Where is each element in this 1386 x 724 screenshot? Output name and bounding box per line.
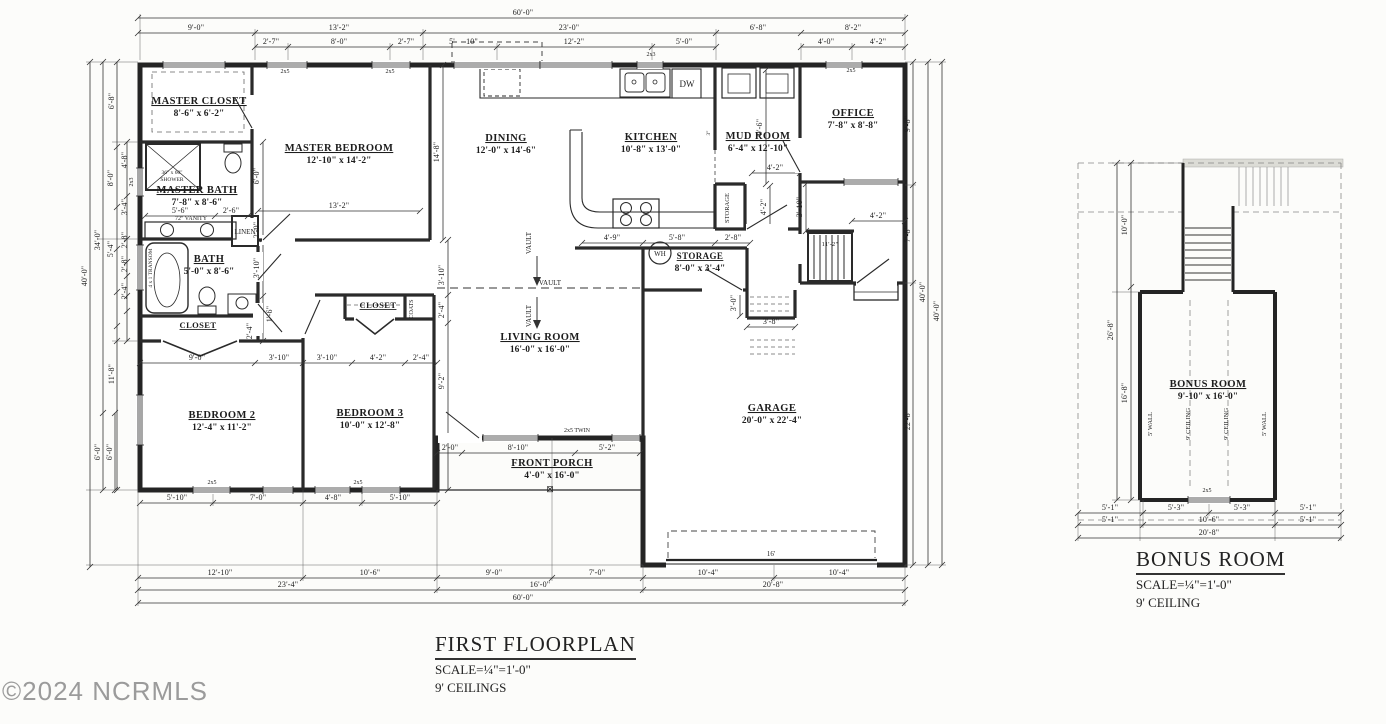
dim-label: 2'-8" [725, 233, 741, 242]
dim-label: 3'-10" [317, 353, 338, 362]
dim-label: 4'-2" [767, 163, 783, 172]
dim-label: 5'-1" [1300, 515, 1316, 524]
door-opening [795, 140, 805, 173]
dim-label: 5'-6" [172, 206, 188, 215]
dim-label: 10" [466, 37, 478, 46]
room-dimensions: 20'-0" x 22'-4" [742, 416, 802, 426]
dim-chain [87, 59, 93, 570]
room-label: MASTER CLOSET [151, 96, 246, 107]
annotation-label: 2x5 [1203, 488, 1212, 494]
dim-label: 3'-10" [252, 258, 261, 279]
room-label: LIVING ROOM [500, 332, 579, 343]
dim-label: 3'-8" [763, 317, 779, 326]
dim-label: 10'-4" [698, 568, 719, 577]
bonus-stair-treads [1185, 228, 1231, 280]
room-dimensions: 9'-10" x 16'-0" [1178, 392, 1238, 402]
annotation-label: 36" x 60" [162, 170, 183, 176]
room-label: OFFICE [832, 108, 874, 119]
dim-label: 4'-8" [120, 152, 129, 168]
bonus-roof-outline [1078, 163, 1341, 520]
dim-label: 12'-10" [208, 568, 233, 577]
dim-label: 4'-8" [325, 493, 341, 502]
bonus-room-ceiling: 9' CEILING [1136, 595, 1285, 611]
room-dimensions: 8'-0" x 3'-4" [675, 264, 726, 274]
room-dimensions: 8'-6" x 6'-2" [174, 109, 225, 119]
dim-label: 40'-0" [932, 301, 941, 322]
dim-label: 22'-8" [903, 410, 912, 431]
dim-label: 2'-7" [263, 37, 279, 46]
dim-label: 2'-4" [437, 302, 446, 318]
dim-label: 2'-4" [413, 353, 429, 362]
first-floor-title-block: FIRST FLOORPLAN SCALE=¼"=1'-0" 9' CEILIN… [435, 632, 636, 696]
room-dimensions: 7'-8" x 8'-8" [828, 121, 879, 131]
first-floor-title: FIRST FLOORPLAN [435, 632, 636, 660]
room-dimensions: 12'-0" x 14'-6" [476, 146, 536, 156]
dim-chain [910, 59, 916, 568]
dim-label: 9'-6" [755, 119, 764, 135]
dim-label: 9'-0" [486, 568, 502, 577]
bonus-room-scale: SCALE=¼"=1'-0" [1136, 577, 1285, 593]
bonus-lower-flight [1239, 167, 1288, 206]
dim-label: 8'-2" [845, 23, 861, 32]
room-dimensions: 4'-0" x 16'-0" [524, 471, 579, 481]
annotation-label: SHOWER [160, 177, 184, 183]
dim-label: 2'-6" [223, 206, 239, 215]
dim-label: 11'-2" [822, 241, 839, 248]
dim-label: 5'-4" [106, 241, 115, 257]
dim-label: 11'-8" [107, 364, 116, 384]
dim-label: 3'-10" [269, 353, 290, 362]
dim-label: 5'-10" [390, 493, 411, 502]
dim-label: 8'-0" [106, 170, 115, 186]
room-dimensions: 12'-10" x 14'-2" [307, 156, 372, 166]
dim-chain [1128, 160, 1134, 503]
dim-label: 5' [449, 37, 455, 46]
dim-label: 16'-8" [1120, 383, 1129, 404]
annotation-label: 2x3 [647, 52, 656, 58]
annotation-label: ⊠ [546, 484, 554, 494]
dim-label: 23'-0" [559, 23, 580, 32]
dim-label: 4'-2" [870, 37, 886, 46]
room-dimensions: 10'-0" x 12'-8" [340, 421, 400, 431]
dim-label: 1'-6" [265, 306, 274, 322]
room-label: MASTER BEDROOM [285, 143, 394, 154]
dim-label: 7'-8" [903, 226, 912, 242]
door-opening [247, 96, 257, 129]
annotation-label: 3" [706, 131, 712, 136]
dim-label: 8'-10" [508, 443, 529, 452]
bonus-room-title-block: BONUS ROOM SCALE=¼"=1'-0" 9' CEILING [1136, 547, 1285, 611]
annotation-label: 9' CEILING [1223, 408, 1230, 440]
dim-label: 60'-0" [513, 8, 534, 17]
room-label: DINING [485, 133, 527, 144]
annotation-label: VAULT [539, 279, 562, 287]
dim-label: 40'-0" [918, 282, 927, 303]
dim-label: 7'-0" [250, 493, 266, 502]
dim-label: 20'-8" [1199, 528, 1220, 537]
dim-label: 10'-6" [360, 568, 381, 577]
dim-label: 40'-0" [80, 266, 89, 287]
dim-label: 5'-3" [1168, 503, 1184, 512]
annotation-label: 2x5 [847, 68, 856, 74]
annotation-label: 2x5 [281, 69, 290, 75]
room-dimensions: 5'-0" x 8'-6" [184, 267, 235, 277]
dim-label: 16'-0" [530, 580, 551, 589]
annotation-label: VAULT [525, 304, 533, 327]
dim-label: 9'-0" [188, 23, 204, 32]
dim-label: 9'-0" [189, 353, 205, 362]
dim-chain [135, 575, 908, 581]
annotation-label: 5' WALL [1147, 412, 1154, 436]
dim-label: 2'-0" [442, 443, 458, 452]
room-label: CLOSET [360, 300, 397, 310]
dim-label: 3'-4" [120, 199, 129, 215]
room-label: BATH [194, 254, 225, 265]
dim-label: 60'-0" [513, 593, 534, 602]
dim-label: 2'-4" [245, 323, 254, 339]
annotation-label: 2x5 TWIN [564, 428, 591, 434]
dim-label: 3'-10" [437, 265, 446, 286]
room-dimensions: 6'-4" x 12'-10" [728, 144, 788, 154]
room-dimensions: 12'-4" x 11'-2" [192, 423, 252, 433]
floorplan-drawing: MASTER CLOSET8'-6" x 6'-2"MASTER BEDROOM… [0, 0, 1386, 724]
dim-label: 5'-2" [599, 443, 615, 452]
dim-label: 5'-3" [1234, 503, 1250, 512]
room-label: KITCHEN [625, 132, 677, 143]
dim-label: 2'-8" [120, 232, 129, 248]
dim-label: 5'-8" [669, 233, 685, 242]
dim-label: 6'-8" [107, 93, 116, 109]
dim-label: 3'-0" [729, 295, 738, 311]
annotation-label: 2x5 [354, 480, 363, 486]
dim-label: 20'-8" [763, 580, 784, 589]
dim-label: 3'-10" [795, 197, 804, 218]
annotation-label: 2x3 [129, 178, 135, 187]
dim-label: 6'-0" [93, 444, 102, 460]
dim-label: 13'-2" [329, 23, 350, 32]
annotation-label: LINEN [235, 228, 256, 236]
dim-label: 14'-8" [432, 142, 441, 163]
dim-label: 34'-0" [93, 230, 102, 251]
annotation-label: 2x5 [386, 69, 395, 75]
room-label: STORAGE [677, 251, 724, 261]
dim-label: 4'-2" [370, 353, 386, 362]
dim-label: 4'-2" [759, 199, 768, 215]
annotation-label: 5' WALL [1261, 412, 1268, 436]
dim-label: 6'-0" [105, 444, 114, 460]
dim-label: 10'-6" [1199, 515, 1220, 524]
dim-chain [252, 44, 719, 50]
room-label: BEDROOM 2 [189, 410, 256, 421]
dim-label: 9'-8" [903, 116, 912, 132]
dim-label: 4'-9" [604, 233, 620, 242]
room-dimensions: 10'-8" x 13'-0" [621, 145, 681, 155]
floorplan-sheet: MASTER CLOSET8'-6" x 6'-2"MASTER BEDROOM… [0, 0, 1386, 724]
dim-label: 8'-0" [331, 37, 347, 46]
dim-label: 7'-0" [589, 568, 605, 577]
watermark: ©2024 NCRMLS [2, 676, 208, 707]
dim-label: 5'-10" [167, 493, 188, 502]
dim-label: 10'-0" [1120, 215, 1129, 236]
dim-label: 5'-1" [1300, 503, 1316, 512]
dim-chain [798, 44, 908, 50]
room-label: CLOSET [180, 320, 217, 330]
dim-label: 5'-1" [1102, 503, 1118, 512]
dim-label: 26'-8" [1106, 320, 1115, 341]
bonus-room-title: BONUS ROOM [1136, 547, 1285, 575]
stairs-main [806, 231, 854, 281]
annotation-label: 72" VANITY [175, 216, 208, 222]
dim-label: 6'-8" [750, 23, 766, 32]
annotation-label: 2x5 [208, 480, 217, 486]
dim-label: 9'-2" [437, 373, 446, 389]
dim-label: 10'-4" [829, 568, 850, 577]
dim-label: 23'-4" [278, 580, 299, 589]
dim-label: 4'-0" [818, 37, 834, 46]
room-label: MASTER BATH [157, 185, 238, 196]
dim-label: 2'-7" [398, 37, 414, 46]
annotation-label: WH [654, 250, 666, 258]
room-label: BONUS ROOM [1170, 379, 1247, 390]
annotation-label: COATS [409, 299, 415, 318]
annotation-label: 4 x 1 TRANSOM [148, 248, 154, 287]
dim-label: 2'-8" [120, 256, 129, 272]
dim-label: 6'-0" [252, 168, 261, 184]
room-label: FRONT PORCH [511, 458, 593, 469]
dim-label: 4'-2" [870, 211, 886, 220]
bonus-plan [1078, 159, 1343, 520]
first-floor-ceiling: 9' CEILINGS [435, 680, 636, 696]
annotation-label: VAULT [525, 231, 533, 254]
dim-label: 5'-0" [676, 37, 692, 46]
dim-label: 13'-2" [329, 201, 350, 210]
dim-label: 2'-4" [120, 283, 129, 299]
dim-chain [925, 59, 931, 568]
annotation-label: 9' CEILING [1185, 408, 1192, 440]
room-dimensions: 16'-0" x 16'-0" [510, 345, 570, 355]
annotation-label: DW [680, 79, 695, 89]
annotation-label: STORAGE [724, 193, 731, 223]
dim-chain [100, 59, 106, 493]
annotation-label: 16' [767, 550, 775, 558]
dim-chain [135, 30, 908, 36]
room-label: GARAGE [748, 403, 797, 414]
room-label: BEDROOM 3 [337, 408, 404, 419]
first-floor-scale: SCALE=¼"=1'-0" [435, 662, 636, 678]
dim-label: 12'-2" [564, 37, 585, 46]
dim-label: 5'-1" [1102, 515, 1118, 524]
